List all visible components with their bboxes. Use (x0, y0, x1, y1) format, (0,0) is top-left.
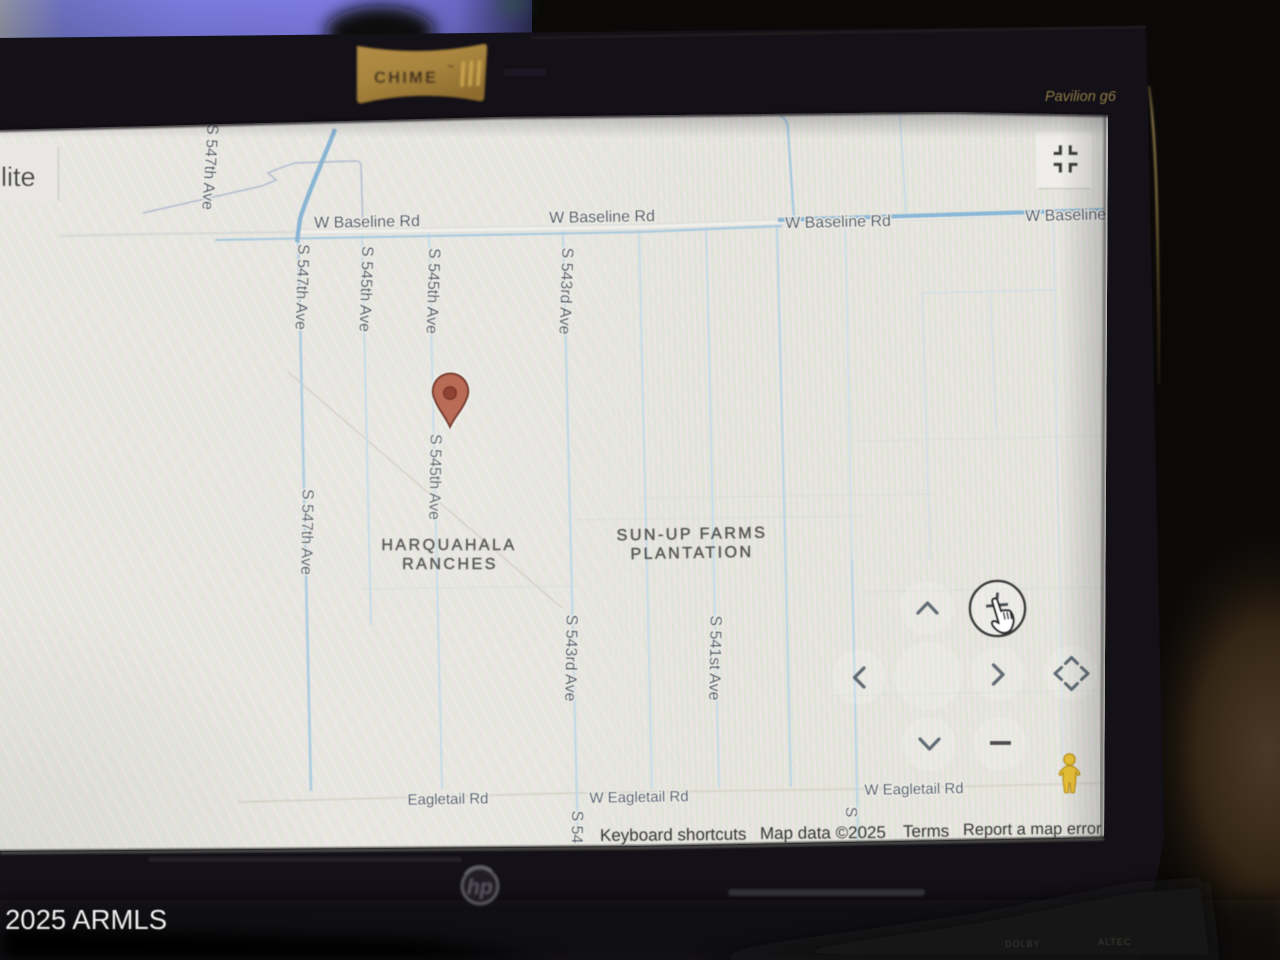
svg-text:W Eagletail Rd: W Eagletail Rd (864, 780, 964, 799)
svg-text:Keyboard shortcuts: Keyboard shortcuts (600, 825, 747, 845)
svg-text:Pavilion g6: Pavilion g6 (1045, 89, 1117, 105)
svg-text:lite: lite (1, 162, 36, 192)
svg-text:W Baseline Rd: W Baseline Rd (549, 208, 655, 227)
svg-text:ALTEC: ALTEC (1098, 937, 1131, 947)
svg-text:W Baseline Rd: W Baseline Rd (785, 213, 891, 232)
svg-text:Terms: Terms (903, 822, 949, 841)
svg-text:W Eagletail Rd: W Eagletail Rd (589, 788, 689, 807)
svg-text:™: ™ (447, 65, 454, 72)
svg-text:W Baseline Rd: W Baseline Rd (314, 213, 420, 232)
svg-text:hp: hp (467, 876, 493, 899)
svg-text:Map data ©2025: Map data ©2025 (760, 823, 886, 843)
svg-text:2025 ARMLS: 2025 ARMLS (5, 904, 167, 935)
svg-text:S 541st Ave: S 541st Ave (705, 615, 723, 700)
svg-text:DOLBY: DOLBY (1005, 939, 1041, 949)
svg-text:S: S (842, 807, 859, 818)
svg-text:CHIME: CHIME (374, 69, 438, 87)
